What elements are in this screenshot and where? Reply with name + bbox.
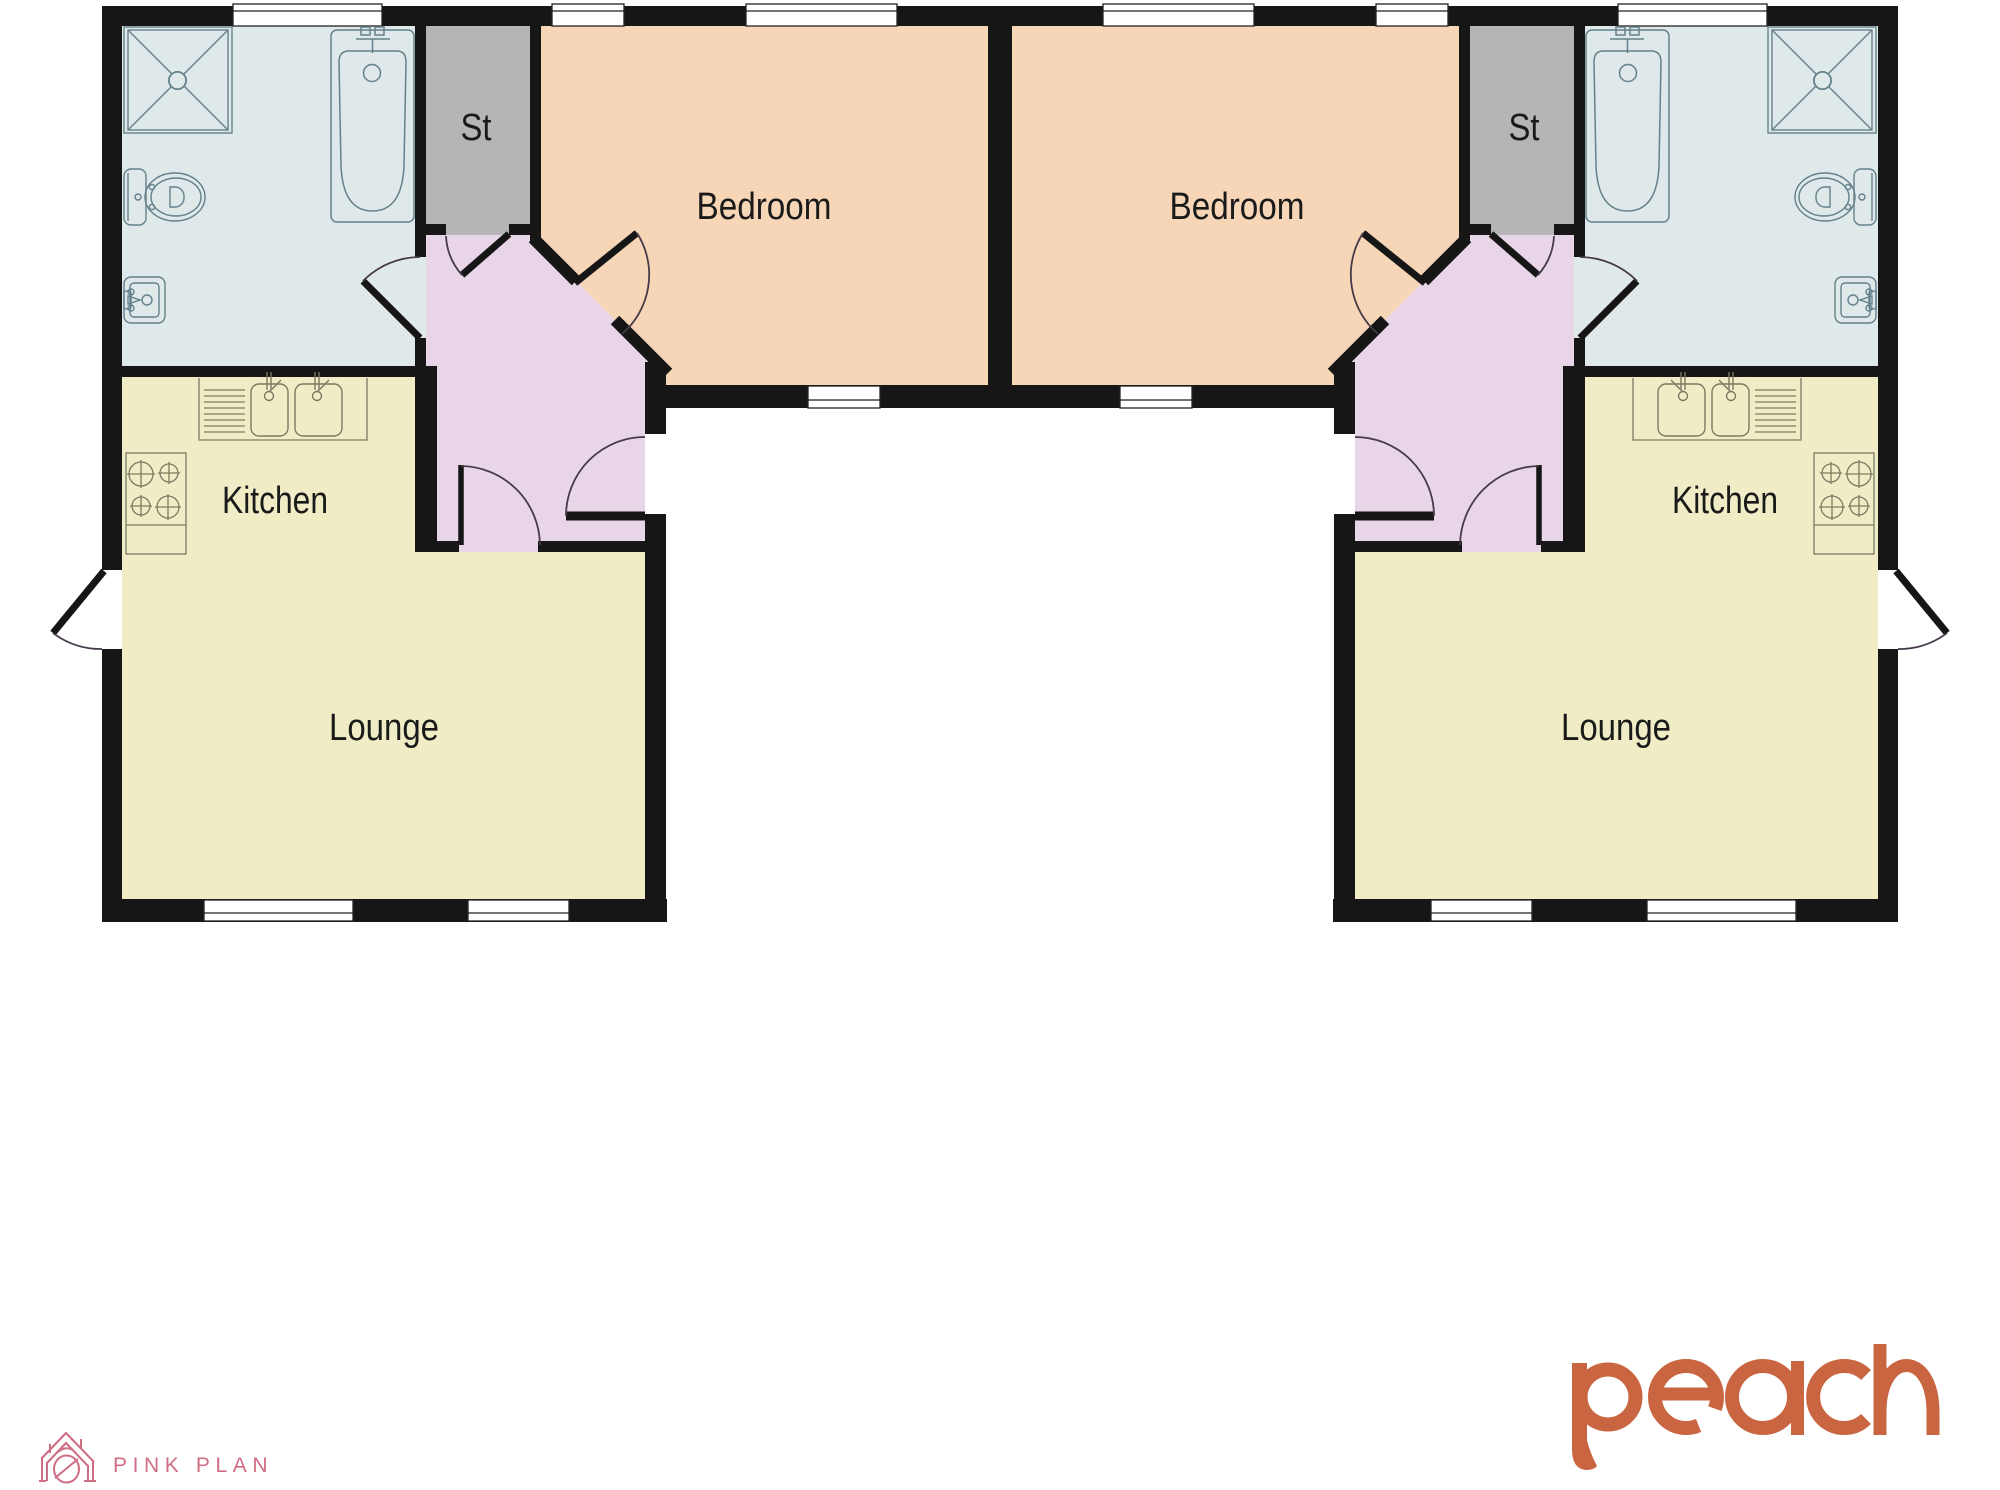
svg-text:Lounge: Lounge xyxy=(1561,707,1671,749)
svg-text:Lounge: Lounge xyxy=(329,707,439,749)
svg-text:Kitchen: Kitchen xyxy=(1672,480,1778,522)
svg-text:St: St xyxy=(461,107,492,149)
svg-text:Bedroom: Bedroom xyxy=(697,186,832,228)
svg-text:Bedroom: Bedroom xyxy=(1170,186,1305,228)
svg-text:St: St xyxy=(1509,107,1540,149)
svg-text:PINK PLAN: PINK PLAN xyxy=(113,1454,273,1477)
svg-text:Kitchen: Kitchen xyxy=(222,480,328,522)
